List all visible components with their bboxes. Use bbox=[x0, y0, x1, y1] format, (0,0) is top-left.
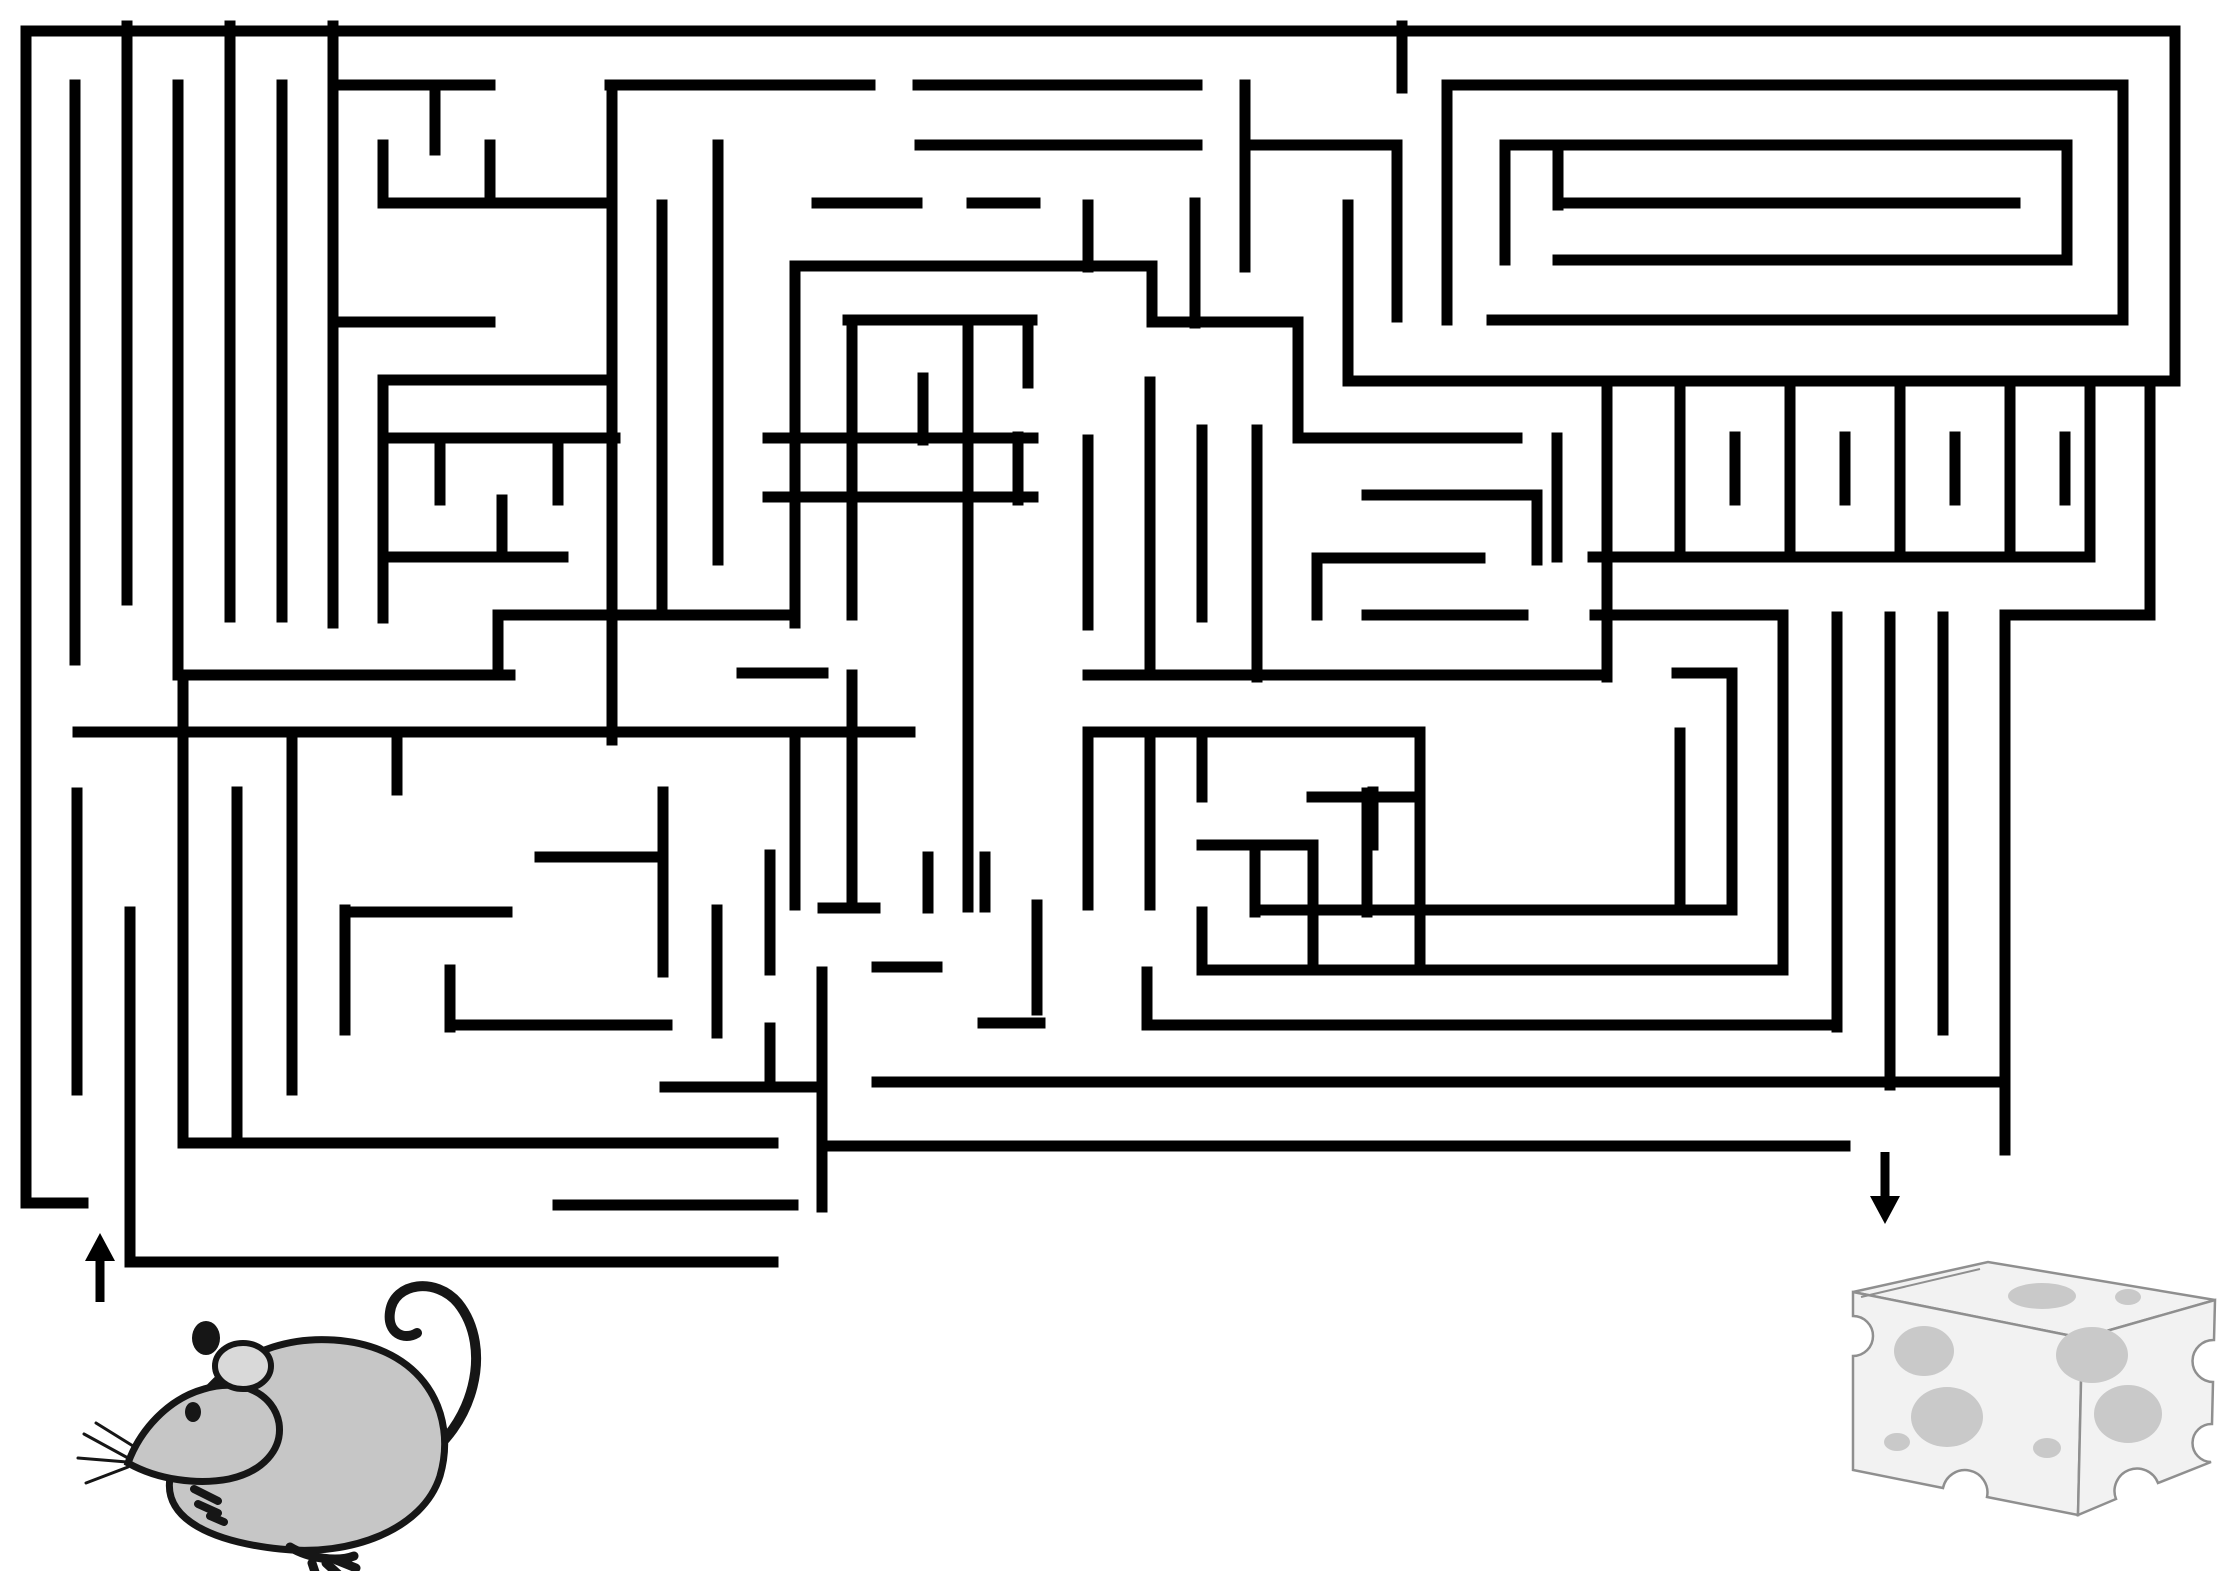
mouse-ear bbox=[215, 1343, 271, 1389]
maze-svg bbox=[0, 0, 2236, 1571]
maze-worksheet bbox=[0, 0, 2236, 1571]
maze-walls bbox=[26, 26, 2175, 1262]
mouse-head bbox=[128, 1385, 279, 1481]
mouse-whiskers bbox=[78, 1423, 133, 1483]
mouse-far-ear bbox=[192, 1321, 220, 1355]
maze-exit-arrow bbox=[1870, 1152, 1900, 1224]
maze-entrance-arrow bbox=[85, 1233, 115, 1302]
maze-arrows bbox=[85, 1152, 1900, 1302]
mouse-eye bbox=[185, 1402, 201, 1422]
cheese-illustration bbox=[1853, 1262, 2215, 1515]
mouse-illustration bbox=[78, 1286, 476, 1571]
